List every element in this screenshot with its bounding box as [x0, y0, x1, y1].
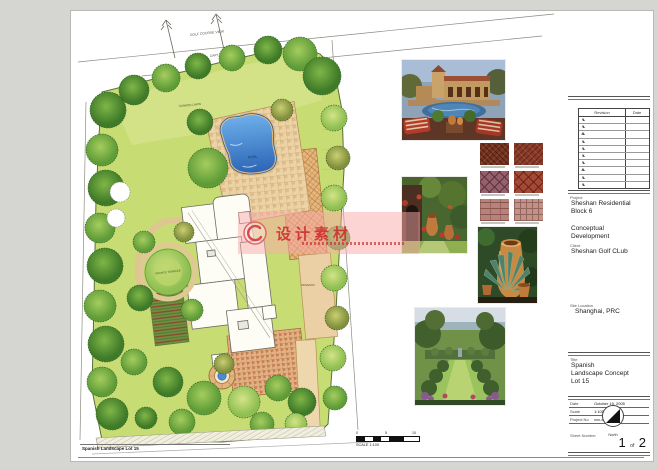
date-col-header: Date: [626, 109, 648, 116]
north-arrow: North: [600, 404, 626, 437]
revision-row: [579, 124, 649, 131]
sheet-bottom-rule: [78, 457, 644, 458]
footer-drawing-label: Spanish Landscape Lot 15: [82, 446, 139, 451]
revision-row: [579, 160, 649, 167]
revision-delta-icon: [581, 154, 585, 157]
revision-delta-icon: [581, 132, 585, 135]
drawing-title-line1: Spanish: [566, 362, 652, 370]
revision-delta-icon: [581, 118, 585, 121]
scale-bar-ticks: 0 5 10: [356, 431, 426, 436]
revision-row: [579, 146, 649, 153]
watermark-logo-icon: [242, 220, 268, 246]
revision-row: [579, 153, 649, 160]
sheet-number-of: of: [630, 443, 634, 449]
date-label: Date: [570, 401, 594, 406]
revision-delta-icon: [581, 161, 585, 164]
tile-sample-red-lattice: [514, 171, 543, 193]
scale-bar-caption: SCALE 1:100: [356, 443, 426, 447]
watermark-subline: [302, 242, 406, 245]
scale-label: Scale: [570, 409, 594, 414]
rule: [568, 452, 650, 456]
revision-delta-icon: [581, 125, 585, 128]
tile-sample-pink-grid: [514, 199, 543, 221]
sheet-number: 1 of 2: [618, 434, 646, 452]
revision-row: [579, 131, 649, 138]
scale-tick-0: 0: [356, 431, 358, 435]
sheet-number-label: Sheet Number: [566, 432, 596, 438]
tile-sample-pink-brick: [480, 199, 509, 221]
rule: [568, 96, 650, 100]
reference-photo-formal-garden: [415, 308, 505, 405]
revision-delta-icon: [581, 140, 585, 143]
drawing-sheet-page: GOLF COURSE VIEW CART PATH DRIVEWAY: [0, 0, 658, 470]
golf-course-view-label: GOLF COURSE VIEW: [190, 29, 225, 37]
revision-row: [579, 182, 649, 188]
revision-row: [579, 117, 649, 124]
scale-bar-segments: [356, 436, 420, 442]
watermark-text: 设计素材: [276, 223, 352, 244]
footer-rule: [80, 444, 230, 445]
revision-row: [579, 167, 649, 174]
sheet-number-current: 1: [618, 435, 625, 450]
revision-col-header: Revision: [579, 109, 626, 116]
tile-sample-board: [480, 143, 543, 223]
revision-row: [579, 139, 649, 146]
sheet-number-total: 2: [639, 435, 646, 450]
project-name-line2: Block 6: [566, 208, 652, 216]
project-no-label: Project No: [570, 417, 594, 422]
project-name-line1: Sheshan Residential: [566, 200, 652, 208]
tile-sample-herringbone: [480, 143, 509, 165]
scale-tick-5: 5: [385, 431, 387, 435]
drawing-title-line3: Lot 15: [566, 378, 652, 386]
driveway-label: DRIVEWAY: [301, 283, 316, 287]
revision-delta-icon: [581, 147, 585, 150]
site-location-value: Shanghai, PRC: [566, 308, 652, 316]
revision-delta-icon: [581, 176, 585, 179]
revision-row: [579, 175, 649, 182]
revision-delta-icon: [581, 168, 585, 171]
revision-delta-icon: [581, 183, 585, 186]
revision-table: Revision Date: [578, 108, 650, 189]
drawing-title-line2: Landscape Concept: [566, 370, 652, 378]
client-name: Sheshan Golf CLub: [566, 248, 652, 256]
phase-line2: Development: [566, 233, 652, 241]
tile-sample-dark-red: [514, 143, 543, 165]
north-arrow-icon: [601, 404, 625, 428]
revision-table-header: Revision Date: [579, 109, 649, 117]
reference-photo-spanish-villa-pool: [402, 60, 505, 140]
tile-sample-mauve-lattice: [480, 171, 509, 193]
watermark-banner: 设计素材: [238, 212, 420, 254]
title-block: Revision Date Project Sheshan Residentia…: [566, 12, 652, 460]
phase-line1: Conceptual: [566, 225, 652, 233]
reference-photo-agave-urn: [478, 227, 537, 303]
scale-tick-10: 10: [412, 431, 416, 435]
scale-bar: 0 5 10 SCALE 1:100: [356, 431, 426, 447]
